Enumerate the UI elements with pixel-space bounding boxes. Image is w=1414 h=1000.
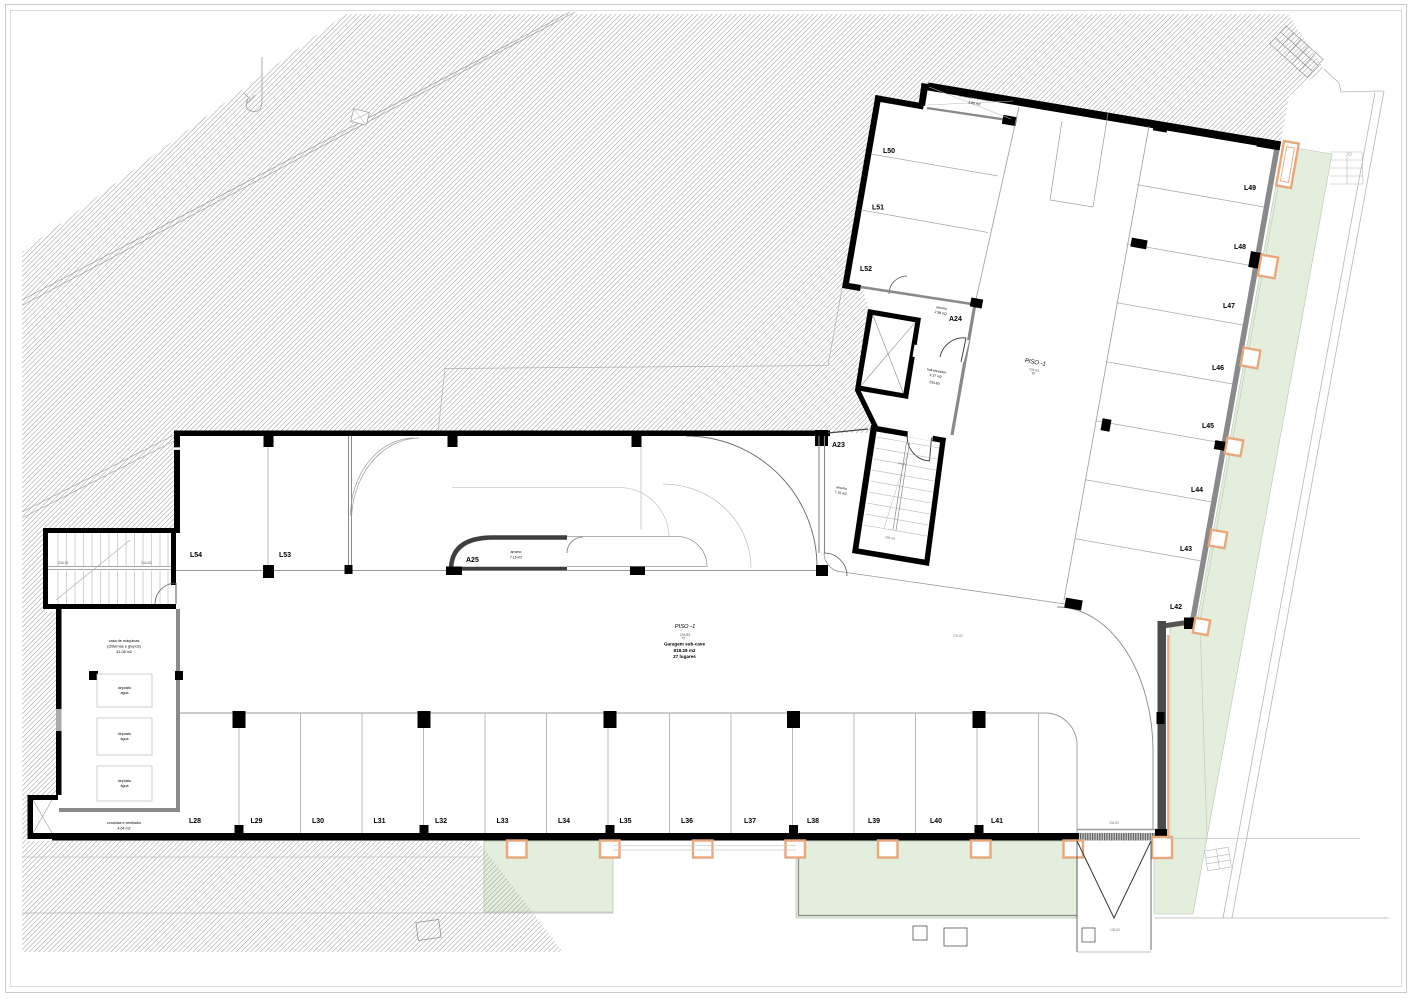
svg-text:105.63: 105.63: [1110, 928, 1120, 932]
svg-text:água: água: [121, 737, 129, 741]
svg-text:L40: L40: [930, 818, 942, 825]
svg-text:L29: L29: [251, 818, 263, 825]
svg-text:234.83: 234.83: [953, 634, 963, 638]
svg-text:L49: L49: [1244, 185, 1256, 192]
svg-text:234.83: 234.83: [680, 633, 690, 637]
svg-text:L39: L39: [868, 818, 880, 825]
svg-text:4.64 m2: 4.64 m2: [118, 827, 131, 831]
svg-text:L31: L31: [374, 818, 386, 825]
svg-text:L52: L52: [860, 266, 872, 273]
svg-text:L48: L48: [1234, 244, 1246, 251]
svg-text:L54: L54: [190, 552, 202, 559]
svg-text:L45: L45: [1202, 423, 1214, 430]
svg-text:27 lugares: 27 lugares: [673, 654, 696, 659]
svg-text:água: água: [121, 784, 129, 788]
svg-text:234.63: 234.63: [141, 561, 151, 565]
svg-text:A25: A25: [466, 557, 479, 564]
svg-text:A23: A23: [832, 442, 845, 449]
svg-text:L32: L32: [435, 818, 447, 825]
svg-text:condutas e ventilador: condutas e ventilador: [107, 821, 142, 825]
svg-text:L35: L35: [620, 818, 632, 825]
svg-text:Garagem sub-cave: Garagem sub-cave: [664, 642, 706, 647]
svg-text:água: água: [121, 691, 129, 695]
svg-text:7.15 m2: 7.15 m2: [510, 556, 522, 560]
svg-text:L30: L30: [312, 818, 324, 825]
svg-text:L38: L38: [807, 818, 819, 825]
svg-text:L50: L50: [883, 148, 895, 155]
svg-text:L44: L44: [1191, 487, 1203, 494]
svg-text:818.29 m2: 818.29 m2: [674, 648, 696, 653]
svg-text:depósito: depósito: [118, 779, 132, 783]
svg-text:(cisternas e grupos): (cisternas e grupos): [107, 645, 141, 649]
svg-text:L46: L46: [1212, 365, 1224, 372]
svg-text:L42: L42: [1170, 604, 1182, 611]
svg-text:L36: L36: [681, 818, 693, 825]
svg-text:L51: L51: [872, 205, 884, 212]
svg-text:L53: L53: [279, 552, 291, 559]
svg-text:41.08 m2: 41.08 m2: [116, 650, 132, 654]
svg-text:L33: L33: [497, 818, 509, 825]
svg-text:arrumo: arrumo: [511, 550, 522, 554]
svg-text:L37: L37: [744, 818, 756, 825]
svg-text:A24: A24: [949, 316, 962, 323]
svg-text:L28: L28: [189, 818, 201, 825]
svg-text:depósito: depósito: [118, 732, 132, 736]
svg-text:L47: L47: [1223, 303, 1235, 310]
svg-text:casa de máquinas: casa de máquinas: [109, 639, 140, 643]
svg-text:L34: L34: [558, 818, 570, 825]
svg-text:depósito: depósito: [118, 686, 132, 690]
svg-text:L41: L41: [991, 818, 1003, 825]
svg-text:234.83: 234.83: [1109, 821, 1119, 825]
svg-text:L43: L43: [1180, 546, 1192, 553]
svg-text:PISO -1: PISO -1: [675, 624, 696, 630]
svg-text:234.22: 234.22: [58, 561, 68, 565]
